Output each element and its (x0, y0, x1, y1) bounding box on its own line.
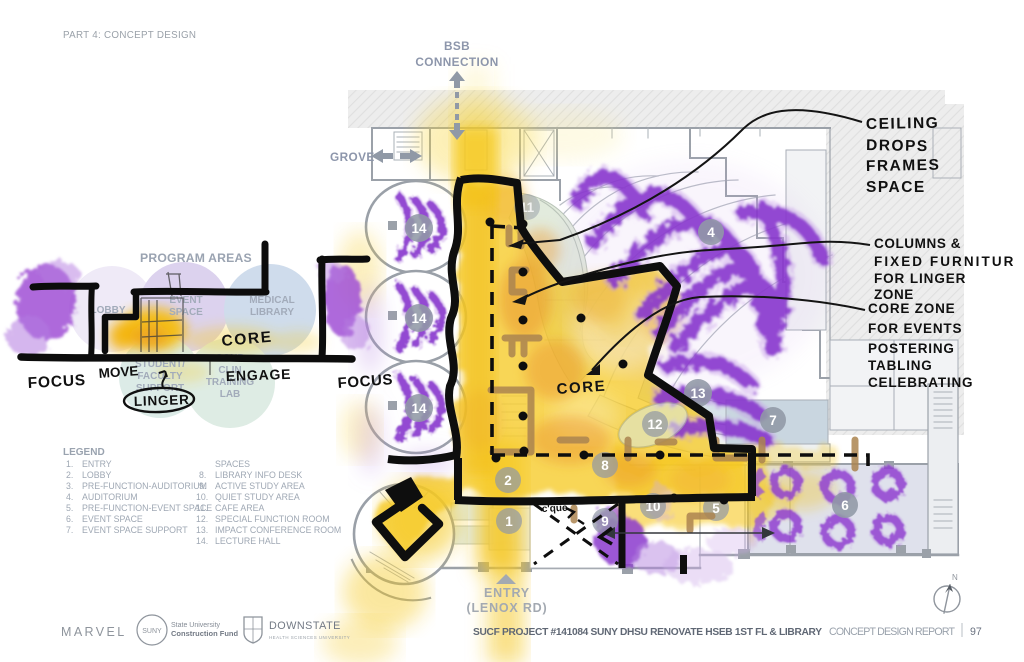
svg-text:ACTIVE STUDY AREA: ACTIVE STUDY AREA (215, 481, 305, 491)
svg-text:4: 4 (707, 225, 715, 240)
svg-text:14: 14 (411, 401, 427, 416)
svg-text:FOR LINGER: FOR LINGER (874, 271, 966, 286)
svg-text:10.: 10. (196, 492, 208, 502)
svg-text:8.: 8. (199, 470, 206, 480)
svg-text:LEGEND: LEGEND (63, 447, 105, 458)
svg-text:97: 97 (970, 626, 982, 638)
svg-text:6.: 6. (66, 514, 73, 524)
svg-text:N: N (952, 573, 958, 582)
svg-text:ENTRY: ENTRY (82, 459, 112, 469)
svg-text:1.: 1. (66, 459, 73, 469)
svg-text:14: 14 (411, 221, 427, 236)
svg-text:PRE-FUNCTION-AUDITORIUM: PRE-FUNCTION-AUDITORIUM (82, 481, 207, 491)
svg-text:CELEBRATING: CELEBRATING (868, 375, 973, 390)
svg-text:GROVE: GROVE (330, 150, 375, 164)
svg-text:SPACE: SPACE (866, 179, 926, 196)
svg-text:PART 4: CONCEPT DESIGN: PART 4: CONCEPT DESIGN (63, 30, 196, 41)
svg-text:HEALTH SCIENCES UNIVERSITY: HEALTH SCIENCES UNIVERSITY (269, 635, 350, 640)
svg-text:12: 12 (647, 417, 662, 432)
svg-text:SUCF PROJECT #141084 SUNY DHSU: SUCF PROJECT #141084 SUNY DHSU RENOVATE … (473, 627, 822, 638)
svg-text:FOCUS: FOCUS (27, 372, 86, 392)
svg-text:LIBRARY: LIBRARY (250, 307, 294, 318)
svg-text:CEILING: CEILING (866, 115, 940, 133)
svg-text:4.: 4. (66, 492, 73, 502)
svg-text:14.: 14. (196, 536, 208, 546)
svg-text:EVENT SPACE SUPPORT: EVENT SPACE SUPPORT (82, 525, 188, 535)
svg-text:LINGER: LINGER (134, 392, 190, 409)
svg-text:11.: 11. (196, 503, 208, 513)
svg-text:CAFE AREA: CAFE AREA (215, 503, 265, 513)
svg-text:13.: 13. (196, 525, 208, 535)
svg-text:cʹque: cʹque (542, 503, 569, 515)
svg-text:LAB: LAB (220, 389, 241, 400)
svg-text:State University: State University (171, 622, 221, 629)
svg-text:LECTURE HALL: LECTURE HALL (215, 536, 281, 546)
svg-text:1: 1 (505, 514, 513, 529)
svg-text:DOWNSTATE: DOWNSTATE (269, 620, 341, 632)
svg-text:FIXED FURNITUR: FIXED FURNITUR (874, 254, 1014, 269)
svg-text:FOR EVENTS: FOR EVENTS (868, 321, 962, 336)
svg-text:PRE-FUNCTION-EVENT SPACE: PRE-FUNCTION-EVENT SPACE (82, 503, 212, 513)
svg-text:COLUMNS &: COLUMNS & (874, 236, 961, 251)
svg-text:ZONE: ZONE (874, 287, 914, 302)
svg-text:IMPACT CONFERENCE ROOM: IMPACT CONFERENCE ROOM (215, 525, 341, 535)
svg-text:SUNY: SUNY (142, 628, 162, 635)
svg-text:CONNECTION: CONNECTION (415, 55, 498, 69)
svg-text:7.: 7. (66, 525, 73, 535)
svg-text:MOVE: MOVE (98, 363, 139, 381)
svg-text:5.: 5. (66, 503, 73, 513)
svg-text:8: 8 (601, 458, 609, 473)
svg-text:DROPS: DROPS (866, 137, 929, 155)
svg-text:SPECIAL FUNCTION ROOM: SPECIAL FUNCTION ROOM (215, 514, 330, 524)
svg-text:EVENT: EVENT (169, 295, 202, 306)
svg-text:3.: 3. (66, 481, 73, 491)
svg-text:2.: 2. (66, 470, 73, 480)
svg-text:7: 7 (769, 413, 777, 428)
svg-text:ENTRY: ENTRY (484, 586, 530, 600)
svg-text:POSTERING: POSTERING (868, 341, 955, 356)
svg-text:LIBRARY INFO DESK: LIBRARY INFO DESK (215, 470, 302, 480)
svg-text:MEDICAL: MEDICAL (249, 295, 295, 306)
svg-text:12.: 12. (196, 514, 208, 524)
svg-text:LOBBY: LOBBY (82, 470, 111, 480)
svg-text:PROGRAM AREAS: PROGRAM AREAS (140, 251, 252, 265)
svg-text:(LENOX RD): (LENOX RD) (467, 601, 548, 615)
svg-text:14: 14 (411, 311, 427, 326)
svg-text:AUDITORIUM: AUDITORIUM (82, 492, 138, 502)
svg-text:ENGAGE: ENGAGE (226, 366, 292, 384)
svg-text:SPACES: SPACES (215, 459, 250, 469)
svg-text:6: 6 (841, 498, 849, 513)
svg-text:CORE ZONE: CORE ZONE (868, 301, 955, 316)
svg-text:Construction Fund: Construction Fund (171, 629, 238, 638)
svg-text:BSB: BSB (444, 39, 470, 53)
svg-text:TABLING: TABLING (868, 358, 933, 373)
svg-text:2: 2 (504, 473, 512, 488)
svg-text:CORE: CORE (556, 378, 607, 398)
svg-text:9.: 9. (199, 481, 206, 491)
svg-text:CONCEPT DESIGN REPORT: CONCEPT DESIGN REPORT (829, 626, 956, 638)
svg-text:MARVEL: MARVEL (61, 625, 127, 639)
svg-text:QUIET STUDY AREA: QUIET STUDY AREA (215, 492, 300, 502)
svg-text:9: 9 (601, 514, 609, 529)
svg-text:EVENT SPACE: EVENT SPACE (82, 514, 143, 524)
svg-text:FRAMES: FRAMES (866, 157, 941, 175)
svg-text:SPACE: SPACE (169, 307, 203, 318)
svg-text:13: 13 (690, 386, 706, 401)
